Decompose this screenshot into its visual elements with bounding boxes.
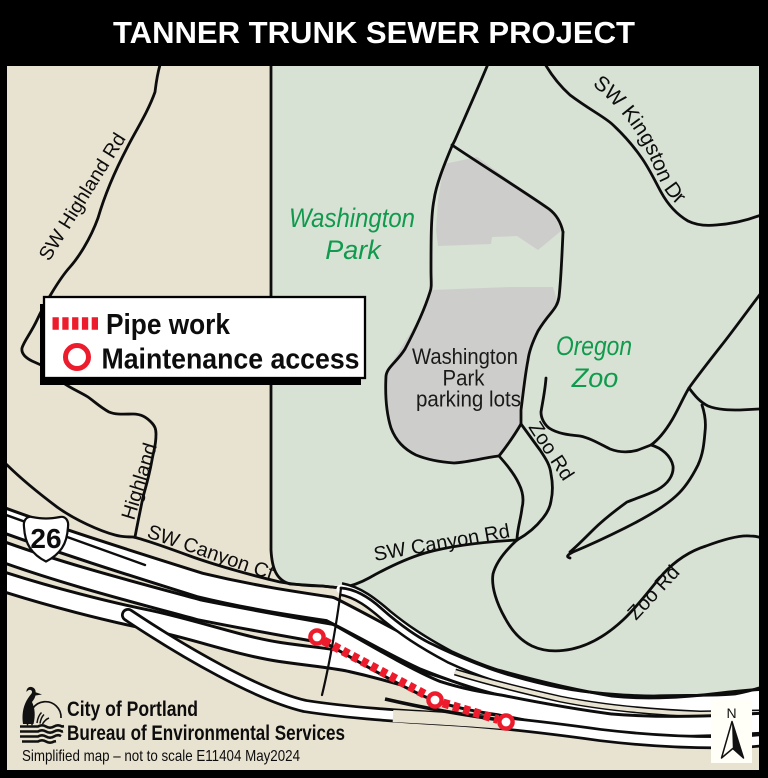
svg-text:N: N — [726, 705, 736, 721]
svg-text:26: 26 — [30, 523, 61, 554]
svg-text:parking lots: parking lots — [416, 387, 521, 412]
svg-text:Maintenance access: Maintenance access — [102, 344, 360, 376]
svg-text:Pipe work: Pipe work — [106, 309, 231, 341]
svg-text:TANNER TRUNK SEWER PROJECT: TANNER TRUNK SEWER PROJECT — [113, 15, 635, 50]
svg-text:Washington: Washington — [289, 203, 415, 233]
svg-text:Zoo: Zoo — [571, 363, 619, 393]
svg-text:Simplified map – not to scale: Simplified map – not to scale E11404 May… — [22, 748, 300, 765]
svg-text:Bureau of Environmental Servic: Bureau of Environmental Services — [67, 722, 345, 745]
svg-text:Park: Park — [325, 235, 382, 265]
svg-text:Oregon: Oregon — [556, 331, 632, 361]
svg-text:City of Portland: City of Portland — [67, 698, 198, 721]
